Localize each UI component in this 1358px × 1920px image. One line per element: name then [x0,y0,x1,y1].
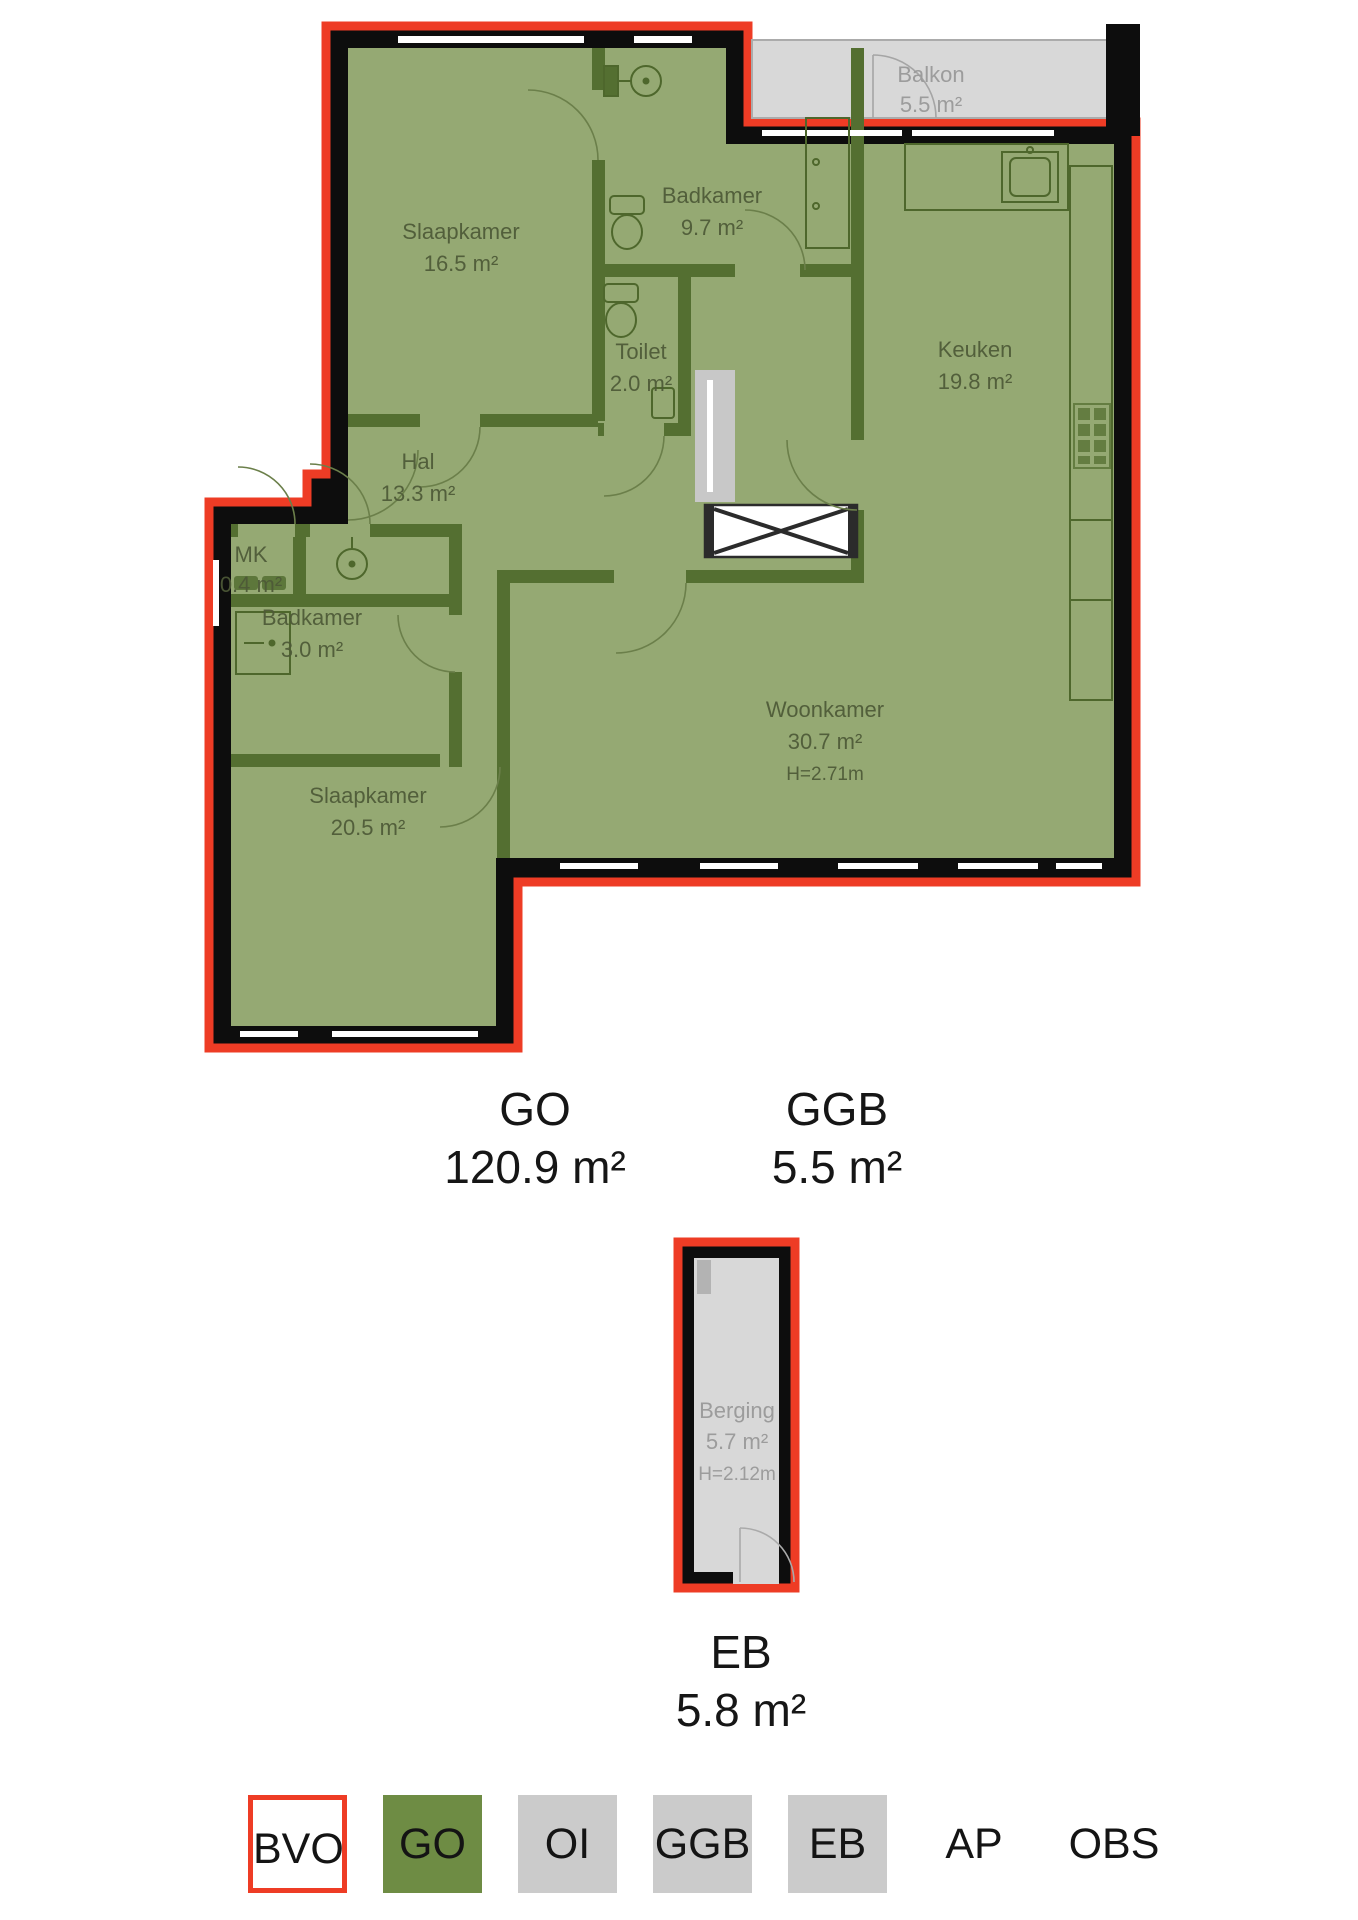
storage-unit: Berging 5.7 m² H=2.12m [678,1242,795,1588]
wall-woonkamer-top-b [686,570,857,583]
balcony-wall-pillar [1106,24,1140,136]
basin-wall-box [604,66,618,96]
label-keuken-name: Keuken [938,337,1013,362]
wall-mk-top-b [295,524,310,537]
summary-eb-value: 5.8 m² [676,1684,806,1736]
wall-woonkamer-top-a [497,570,614,583]
legend-item-eb: EB [788,1795,887,1893]
wall-woonkamer-left [497,570,510,858]
label-woonkamer-area: 30.7 m² [788,729,863,754]
legend-item-oi: OI [518,1795,617,1893]
floor-plan-drawing: Slaapkamer 16.5 m² Badkamer 9.7 m² Toile… [0,0,1358,1795]
wall-toilet-bottom-a [598,423,604,436]
window-left-wall [213,560,219,626]
void-box-cap-left [705,505,714,557]
summary-ggb-value: 5.5 m² [772,1141,902,1193]
wall-keuken-left-a [851,48,864,440]
label-toilet-name: Toilet [615,339,666,364]
basin-dot [644,79,649,84]
summary-eb-label: EB [710,1626,771,1678]
label-mk-name: MK [235,542,268,567]
window-bottom-left-2 [332,1031,478,1037]
shower-drain [270,641,275,646]
floor-plan-page: Slaapkamer 16.5 m² Badkamer 9.7 m² Toile… [0,0,1358,1920]
legend: BVO GO OI GGB EB AP OBS [0,1795,1358,1893]
wall-badkamer1-bottom-b [800,264,851,277]
legend-item-go: GO [383,1795,482,1893]
wall-block-right-b [449,672,462,767]
label-slaapkamer1-area: 16.5 m² [424,251,499,276]
wall-toilet-bottom-b [664,423,678,436]
label-berging-area: 5.7 m² [706,1429,768,1454]
label-badkamer1-area: 9.7 m² [681,215,743,240]
label-badkamer2-name: Badkamer [262,605,362,630]
label-woonkamer-height: H=2.71m [786,764,864,785]
window-bottom-right-2 [700,863,778,869]
label-badkamer1-name: Badkamer [662,183,762,208]
label-mk-area: 0.4 m² [220,572,282,597]
label-keuken-area: 19.8 m² [938,369,1013,394]
legend-item-ap: AP [919,1795,1029,1893]
wall-badkamer2-bottom-a [231,754,440,767]
window-keuken-balkon-1 [762,130,902,136]
window-top-2 [634,36,692,43]
label-badkamer2-area: 3.0 m² [281,637,343,662]
washer-dot [350,562,355,567]
storage-tag [697,1260,711,1294]
gray-mat-line [707,380,713,492]
wall-badkamer2-bottom-b [500,754,510,767]
wall-mk-top-a [231,524,238,537]
window-bottom-left-1 [240,1031,298,1037]
label-hal-area: 13.3 m² [381,481,456,506]
summary-go-value: 120.9 m² [444,1141,626,1193]
wall-badkamer1-bottom-a [598,264,735,277]
label-balkon-name: Balkon [897,62,964,87]
window-bottom-right-1 [560,863,638,869]
window-bottom-right-5 [1056,863,1102,869]
label-hal-name: Hal [401,449,434,474]
window-bottom-right-3 [838,863,918,869]
label-berging-name: Berging [699,1398,775,1423]
gray-mat [695,370,735,502]
legend-item-bvo: BVO [248,1795,347,1893]
void-box-cap-right [848,505,857,557]
label-balkon-area: 5.5 m² [900,92,962,117]
window-keuken-balkon-2 [912,130,1054,136]
area-summary: GO 120.9 m² GGB 5.5 m² [444,1083,902,1193]
wall-hal-top-b [480,414,598,427]
wall-toilet-right [678,270,691,436]
eb-summary: EB 5.8 m² [676,1626,806,1736]
label-slaapkamer2-name: Slaapkamer [309,783,426,808]
summary-go-label: GO [499,1083,571,1135]
label-slaapkamer2-area: 20.5 m² [331,815,406,840]
wall-mk-top-c [370,524,462,537]
wall-hal-top-a [348,414,420,427]
label-woonkamer-name: Woonkamer [766,697,884,722]
label-slaapkamer1-name: Slaapkamer [402,219,519,244]
legend-item-obs: OBS [1049,1795,1179,1893]
window-top-1 [398,36,584,43]
label-toilet-area: 2.0 m² [610,371,672,396]
summary-ggb-label: GGB [786,1083,888,1135]
legend-item-ggb: GGB [653,1795,752,1893]
label-berging-height: H=2.12m [698,1464,776,1485]
wall-mk-right [293,537,306,594]
window-bottom-right-4 [958,863,1038,869]
